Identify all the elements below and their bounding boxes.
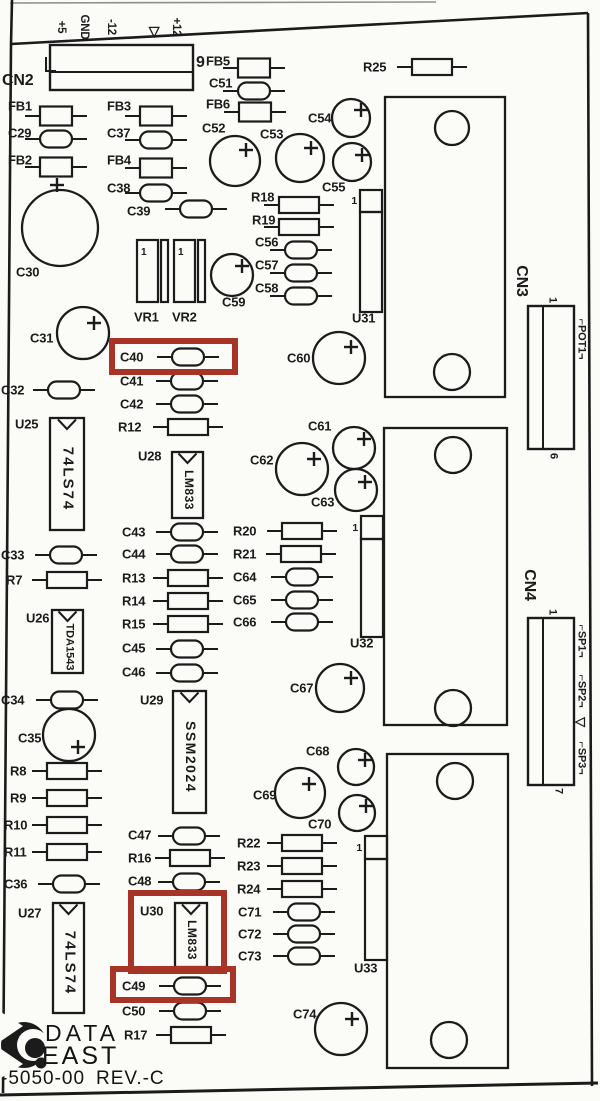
component-R13 xyxy=(153,570,223,586)
label-C74: C74 xyxy=(293,1008,316,1021)
component-C32 xyxy=(33,382,95,399)
component-C58 xyxy=(270,288,332,305)
component-C73 xyxy=(273,948,335,965)
component-C35 xyxy=(43,709,95,761)
cn4-pin7-label: 7 xyxy=(553,788,564,794)
component-C69 xyxy=(275,768,325,818)
revision: REV.-C xyxy=(96,1069,165,1088)
label-C36: C36 xyxy=(4,878,27,891)
component-C30 xyxy=(22,178,98,266)
label-C32: C32 xyxy=(1,384,24,397)
label-C47: C47 xyxy=(128,829,151,842)
cn2-pin-triangle-icon: ▽ xyxy=(149,24,160,38)
cn4-signal-label: ⌐SP2¬ xyxy=(576,675,587,708)
component-C47 xyxy=(158,828,220,845)
connector-cn2-label: CN2 xyxy=(2,73,33,89)
ic-u31 xyxy=(360,190,382,312)
component-C60 xyxy=(313,332,365,384)
cn3-pin6-label: 6 xyxy=(548,453,559,459)
label-R11: R11 xyxy=(4,846,27,859)
component-FB5 xyxy=(223,59,285,78)
cn2-pin-label: -12 xyxy=(104,19,116,35)
component-C33 xyxy=(35,547,97,564)
label-R18: R18 xyxy=(251,191,274,204)
component-C62 xyxy=(276,443,328,495)
component-C41 xyxy=(156,373,218,390)
label-R8: R8 xyxy=(10,765,26,778)
component-C55 xyxy=(333,143,371,181)
label-C51: C51 xyxy=(209,77,232,90)
connector-cn2 xyxy=(46,45,193,90)
component-C49 xyxy=(159,978,221,995)
component-R9 xyxy=(32,790,102,806)
ic-ref-label: U31 xyxy=(352,312,375,325)
label-C73: C73 xyxy=(238,950,261,963)
label-R23: R23 xyxy=(237,860,260,873)
label-FB6: FB6 xyxy=(206,98,230,111)
component-R18 xyxy=(264,197,334,213)
component-C64 xyxy=(271,569,333,586)
label-C44: C44 xyxy=(122,548,145,561)
label-C52: C52 xyxy=(202,122,225,135)
ic-ref-label: U25 xyxy=(15,418,38,431)
component-R25 xyxy=(397,59,467,75)
cn4-signal-label: ⌐SP3¬ xyxy=(576,742,587,775)
ic-ref-label: U30 xyxy=(140,905,163,918)
pin1-marker: 1 xyxy=(352,523,358,534)
label-C55: C55 xyxy=(322,181,345,194)
pin1-marker: 1 xyxy=(356,843,362,854)
label-C58: C58 xyxy=(255,282,278,295)
component-R10 xyxy=(32,817,102,833)
cn3-pin1-label: 1 xyxy=(547,297,558,303)
component-C66 xyxy=(271,614,333,631)
label-C69: C69 xyxy=(253,789,276,802)
label-C31: C31 xyxy=(30,332,53,345)
label-C60: C60 xyxy=(287,352,310,365)
label-FB4: FB4 xyxy=(107,154,131,167)
label-R22: R22 xyxy=(237,837,260,850)
connector-cn3-label: CN3 xyxy=(513,265,529,296)
component-C67 xyxy=(316,664,364,712)
ref-label: VR2 xyxy=(172,311,197,324)
component-FB6 xyxy=(224,103,286,122)
label-C37: C37 xyxy=(107,127,130,140)
ic-part-number-label: TDA1543 xyxy=(63,623,74,670)
component-C51 xyxy=(223,83,285,100)
ic-u33 xyxy=(365,836,387,960)
component-C53 xyxy=(276,134,324,182)
component-C57 xyxy=(270,265,332,282)
label-R7: R7 xyxy=(6,574,22,587)
component-R16 xyxy=(155,850,225,866)
label-R25: R25 xyxy=(363,61,386,74)
component-R23 xyxy=(267,858,337,874)
ic-ref-label: U26 xyxy=(26,612,49,625)
component-C56 xyxy=(270,242,332,259)
label-C59: C59 xyxy=(222,296,245,309)
ic-part-number-label: SSM2024 xyxy=(184,721,198,793)
component-FB2 xyxy=(25,158,87,177)
ref-label: VR1 xyxy=(134,311,159,324)
component-R11 xyxy=(32,844,102,860)
label-C53: C53 xyxy=(260,128,283,141)
heatsink-outline-1 xyxy=(385,97,505,397)
connector-cn4 xyxy=(528,618,574,785)
ic-part-number-label: 74LS74 xyxy=(61,447,76,512)
component-FB1 xyxy=(25,107,87,126)
label-R14: R14 xyxy=(122,595,145,608)
label-R17: R17 xyxy=(124,1029,147,1042)
cn4-signal-label: ⌐SP1¬ xyxy=(576,625,587,658)
component-C59 xyxy=(211,254,253,296)
label-C48: C48 xyxy=(128,875,151,888)
label-C33: C33 xyxy=(1,549,24,562)
label-FB5: FB5 xyxy=(206,55,230,68)
label-C70: C70 xyxy=(308,818,331,831)
cn4-triangle-icon: ▽ xyxy=(575,717,588,727)
component-C68 xyxy=(338,749,374,785)
connector-cn3 xyxy=(528,306,574,449)
component-R12 xyxy=(153,419,223,435)
label-R15: R15 xyxy=(122,618,145,631)
label-C46: C46 xyxy=(122,666,145,679)
component-C31 xyxy=(57,307,109,359)
component-C74 xyxy=(315,1003,367,1055)
heatsink-outline-3 xyxy=(387,754,508,1068)
pcb-silkscreen-diagram: CN29+5GND-12▽+12CN316⌐POT1¬CN417⌐SP1¬⌐SP… xyxy=(0,0,600,1101)
component-C70 xyxy=(339,795,375,831)
label-R10: R10 xyxy=(4,819,27,832)
component-C63 xyxy=(335,469,377,511)
cn2-pin9-label: 9 xyxy=(196,55,205,71)
component-C72 xyxy=(273,926,335,943)
component-R21 xyxy=(266,546,336,562)
label-C49: C49 xyxy=(122,980,145,993)
label-C72: C72 xyxy=(238,928,261,941)
label-C71: C71 xyxy=(238,906,261,919)
component-C36 xyxy=(38,876,100,893)
cn2-pin-label: +5 xyxy=(54,21,66,34)
label-C29: C29 xyxy=(8,127,31,140)
component-C29 xyxy=(25,131,87,148)
component-R14 xyxy=(153,593,223,609)
ic-u32 xyxy=(361,516,383,637)
label-R24: R24 xyxy=(237,883,260,896)
label-C66: C66 xyxy=(233,616,256,629)
pin1-marker: 1 xyxy=(141,248,146,258)
label-C57: C57 xyxy=(255,259,278,272)
label-C42: C42 xyxy=(120,398,143,411)
component-C45 xyxy=(156,641,218,658)
cn2-pin-label: GND xyxy=(77,15,89,40)
component-C39 xyxy=(165,201,227,218)
label-C38: C38 xyxy=(107,182,130,195)
cn2-pin-label: +12 xyxy=(169,18,181,37)
label-C54: C54 xyxy=(308,112,331,125)
pin1-marker: 1 xyxy=(351,196,357,207)
ic-ref-label: U28 xyxy=(138,450,161,463)
label-C43: C43 xyxy=(122,526,145,539)
label-C34: C34 xyxy=(1,694,24,707)
label-FB2: FB2 xyxy=(8,154,32,167)
label-C65: C65 xyxy=(233,594,256,607)
pin1-marker: 1 xyxy=(178,248,183,258)
cn3-signal-label: ⌐POT1¬ xyxy=(576,319,587,359)
component-FB4 xyxy=(125,159,187,178)
component-C46 xyxy=(156,665,218,682)
component-C42 xyxy=(156,396,218,413)
component-FB3 xyxy=(125,107,187,126)
label-C35: C35 xyxy=(18,732,41,745)
label-R19: R19 xyxy=(252,214,275,227)
cn4-pin1-label: 1 xyxy=(547,609,558,615)
component-R8 xyxy=(32,763,102,779)
label-C45: C45 xyxy=(122,642,145,655)
label-C64: C64 xyxy=(233,571,256,584)
connector-cn4-label: CN4 xyxy=(521,569,537,600)
label-C39: C39 xyxy=(127,205,150,218)
component-C54 xyxy=(332,99,370,137)
component-R24 xyxy=(267,881,337,897)
component-C40 xyxy=(157,349,219,366)
label-R16: R16 xyxy=(128,852,151,865)
component-R17 xyxy=(156,1027,226,1043)
label-C61: C61 xyxy=(308,420,331,433)
component-C61 xyxy=(333,427,375,469)
component-C50 xyxy=(159,1003,221,1020)
label-R13: R13 xyxy=(122,572,145,585)
ic-part-number-label: LM833 xyxy=(183,470,195,510)
label-C67: C67 xyxy=(290,682,313,695)
component-R7 xyxy=(32,572,102,588)
ic-part-number-label: 74LS74 xyxy=(62,931,77,996)
component-C38 xyxy=(125,185,187,202)
diagram-artwork xyxy=(0,0,600,1101)
label-R21: R21 xyxy=(233,548,256,561)
label-R12: R12 xyxy=(118,421,141,434)
ic-ref-label: U29 xyxy=(140,694,163,707)
heatsink-outline-2 xyxy=(384,428,507,726)
component-R20 xyxy=(267,523,337,539)
ic-ref-label: U33 xyxy=(354,962,377,975)
component-C34 xyxy=(36,692,98,709)
label-C30: C30 xyxy=(16,266,39,279)
label-R20: R20 xyxy=(233,525,256,538)
label-C63: C63 xyxy=(311,496,334,509)
label-R9: R9 xyxy=(10,792,26,805)
component-C43 xyxy=(156,524,218,541)
label-FB1: FB1 xyxy=(8,100,32,113)
label-C68: C68 xyxy=(306,745,329,758)
component-R22 xyxy=(267,835,337,851)
label-C62: C62 xyxy=(250,454,273,467)
label-FB3: FB3 xyxy=(107,100,131,113)
part-number: -5050-00 xyxy=(1,1069,85,1088)
component-R15 xyxy=(153,616,223,632)
ic-ref-label: U27 xyxy=(18,907,41,920)
component-C48 xyxy=(158,874,220,891)
ic-ref-label: U32 xyxy=(350,637,373,650)
component-C52 xyxy=(210,136,260,186)
component-C44 xyxy=(156,546,218,563)
component-C71 xyxy=(273,904,335,921)
brand-text-east: EAST xyxy=(42,1044,119,1069)
label-C41: C41 xyxy=(120,375,143,388)
component-C37 xyxy=(125,132,187,149)
component-C65 xyxy=(271,592,333,609)
label-C40: C40 xyxy=(120,351,143,364)
label-C56: C56 xyxy=(255,236,278,249)
ic-part-number-label: LM833 xyxy=(186,920,198,960)
label-C50: C50 xyxy=(122,1005,145,1018)
